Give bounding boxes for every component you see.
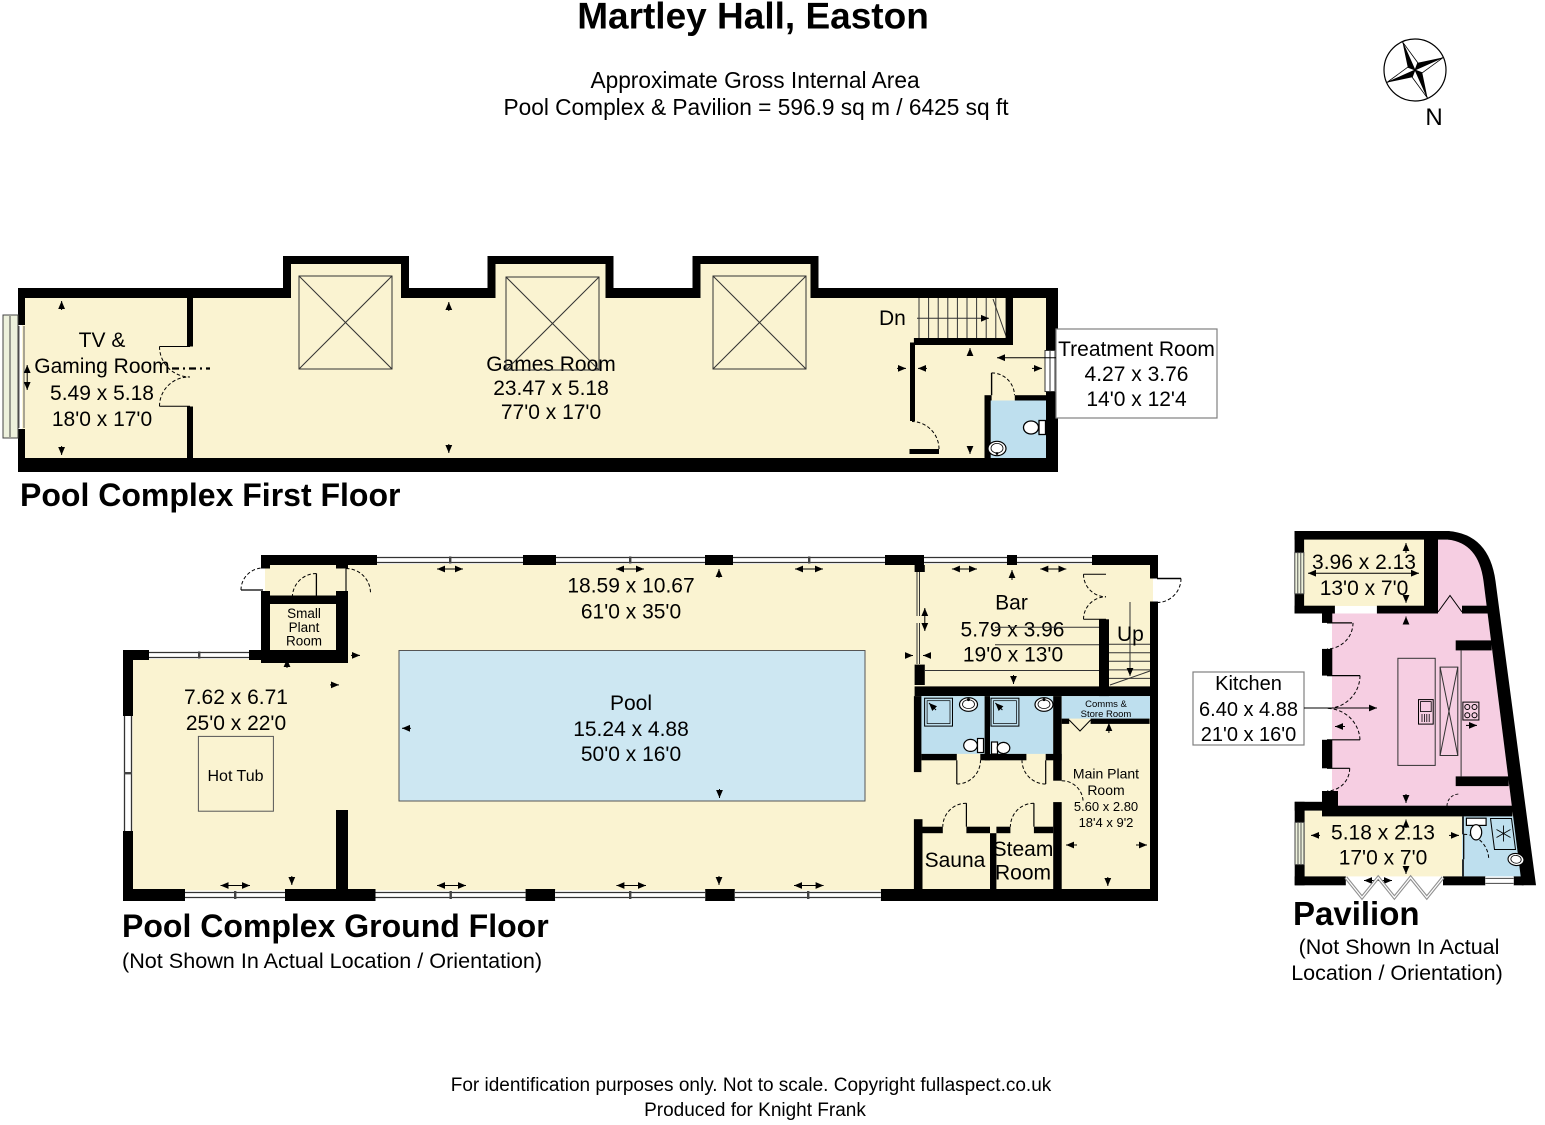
svg-text:13'0 x 7'0: 13'0 x 7'0 (1320, 577, 1409, 600)
svg-text:Room: Room (995, 862, 1051, 885)
svg-text:Bar: Bar (995, 592, 1028, 615)
svg-text:Approximate Gross Internal Are: Approximate Gross Internal Area (590, 67, 920, 93)
svg-text:Produced for Knight Frank: Produced for Knight Frank (644, 1100, 866, 1120)
svg-text:50'0 x 16'0: 50'0 x 16'0 (581, 743, 681, 766)
svg-text:18'4 x 9'2: 18'4 x 9'2 (1079, 815, 1134, 830)
svg-text:6.40 x 4.88: 6.40 x 4.88 (1199, 699, 1298, 721)
svg-text:Pavilion: Pavilion (1293, 895, 1420, 932)
svg-text:15.24 x 4.88: 15.24 x 4.88 (573, 718, 689, 741)
svg-text:Location / Orientation): Location / Orientation) (1291, 961, 1503, 985)
svg-text:Pool Complex First Floor: Pool Complex First Floor (20, 477, 400, 513)
svg-text:Steam: Steam (993, 838, 1054, 861)
svg-text:Kitchen: Kitchen (1215, 673, 1282, 695)
svg-text:4.27 x 3.76: 4.27 x 3.76 (1085, 363, 1189, 386)
svg-text:23.47 x 5.18: 23.47 x 5.18 (493, 377, 609, 400)
svg-text:18.59 x 10.67: 18.59 x 10.67 (567, 575, 694, 598)
svg-text:TV &: TV & (79, 329, 126, 352)
svg-text:17'0 x 7'0: 17'0 x 7'0 (1339, 847, 1428, 870)
svg-text:61'0 x 35'0: 61'0 x 35'0 (581, 601, 681, 624)
svg-text:18'0 x 17'0: 18'0 x 17'0 (52, 408, 152, 431)
svg-text:5.79 x 3.96: 5.79 x 3.96 (961, 619, 1065, 642)
svg-text:5.49 x 5.18: 5.49 x 5.18 (50, 382, 154, 405)
svg-text:Hot Tub: Hot Tub (207, 768, 263, 785)
svg-text:Sauna: Sauna (925, 849, 986, 872)
svg-text:Martley Hall, Easton: Martley Hall, Easton (577, 0, 929, 37)
svg-text:Pool Complex & Pavilion = 596.: Pool Complex & Pavilion = 596.9 sq m / 6… (503, 94, 1009, 120)
svg-text:19'0 x 13'0: 19'0 x 13'0 (963, 644, 1063, 667)
svg-text:21'0 x 16'0: 21'0 x 16'0 (1201, 724, 1297, 746)
svg-text:Room: Room (1087, 782, 1124, 798)
svg-text:Dn: Dn (879, 307, 906, 330)
svg-text:Pool: Pool (610, 692, 652, 715)
svg-text:Pool Complex Ground Floor: Pool Complex Ground Floor (122, 908, 549, 944)
svg-text:Gaming Room: Gaming Room (34, 355, 169, 378)
svg-text:7.62 x 6.71: 7.62 x 6.71 (184, 686, 288, 709)
svg-text:Main Plant: Main Plant (1073, 766, 1139, 782)
svg-text:14'0 x 12'4: 14'0 x 12'4 (1086, 388, 1187, 411)
svg-text:Treatment Room: Treatment Room (1058, 338, 1215, 361)
svg-text:For identification purposes on: For identification purposes only. Not to… (451, 1075, 1052, 1096)
svg-text:(Not Shown In Actual Location: (Not Shown In Actual Location / Orientat… (122, 948, 542, 973)
svg-text:Room: Room (286, 634, 322, 649)
svg-text:5.60 x 2.80: 5.60 x 2.80 (1074, 799, 1138, 814)
svg-text:5.18 x 2.13: 5.18 x 2.13 (1331, 822, 1435, 845)
svg-text:(Not Shown In Actual: (Not Shown In Actual (1299, 935, 1500, 959)
svg-text:Store Room: Store Room (1081, 709, 1132, 720)
svg-text:Up: Up (1117, 623, 1144, 646)
svg-text:3.96 x 2.13: 3.96 x 2.13 (1312, 551, 1416, 574)
svg-text:77'0 x 17'0: 77'0 x 17'0 (501, 401, 601, 424)
svg-text:N: N (1425, 104, 1442, 131)
svg-text:Small: Small (287, 606, 321, 621)
svg-text:25'0 x 22'0: 25'0 x 22'0 (186, 712, 286, 735)
